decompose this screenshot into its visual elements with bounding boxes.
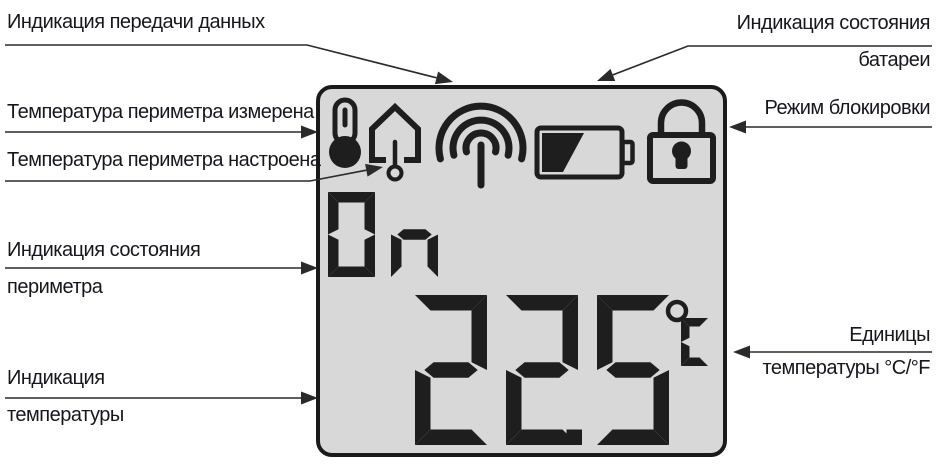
- label-perimeter-status-line1: Индикация состояния: [7, 238, 200, 262]
- label-battery-status-line2: батареи: [858, 48, 930, 72]
- label-perimeter-temp-measured: Температура периметра измерена: [7, 100, 314, 124]
- arrow-battery-status-head: [597, 69, 615, 81]
- lock-icon: [650, 103, 713, 182]
- label-perimeter-temp-set: Температура периметра настроена: [7, 148, 320, 172]
- label-temperature-indication-line1: Индикация: [7, 366, 105, 390]
- label-battery-status-line1: Индикация состояния: [737, 11, 930, 35]
- label-perimeter-status-line2: периметра: [7, 275, 102, 299]
- lcd-graphics: [316, 85, 727, 457]
- lcd-display: [316, 85, 727, 457]
- label-temperature-units-line1: Единицы: [849, 323, 930, 347]
- arrow-data-transmission: [5, 45, 437, 78]
- label-data-transmission: Индикация передачи данных: [7, 10, 265, 34]
- temperature-unit: [668, 302, 708, 366]
- arrow-lock-mode-head: [729, 121, 746, 134]
- house-thermometer-icon: [372, 107, 418, 180]
- thermometer-icon: [329, 100, 361, 168]
- label-temperature-units-line2: температуры °C/°F: [763, 356, 931, 380]
- perimeter-status-value: [328, 192, 438, 277]
- arrow-data-transmission-head: [435, 72, 453, 85]
- diagram-canvas: Индикация передачи данных Индикация сост…: [0, 0, 937, 471]
- temperature-value: [415, 295, 669, 445]
- battery-icon: [537, 128, 633, 177]
- label-temperature-indication-line2: температуры: [7, 403, 124, 427]
- signal-icon: [439, 106, 523, 185]
- arrow-temperature-units-head: [733, 346, 750, 359]
- label-lock-mode: Режим блокировки: [764, 96, 930, 120]
